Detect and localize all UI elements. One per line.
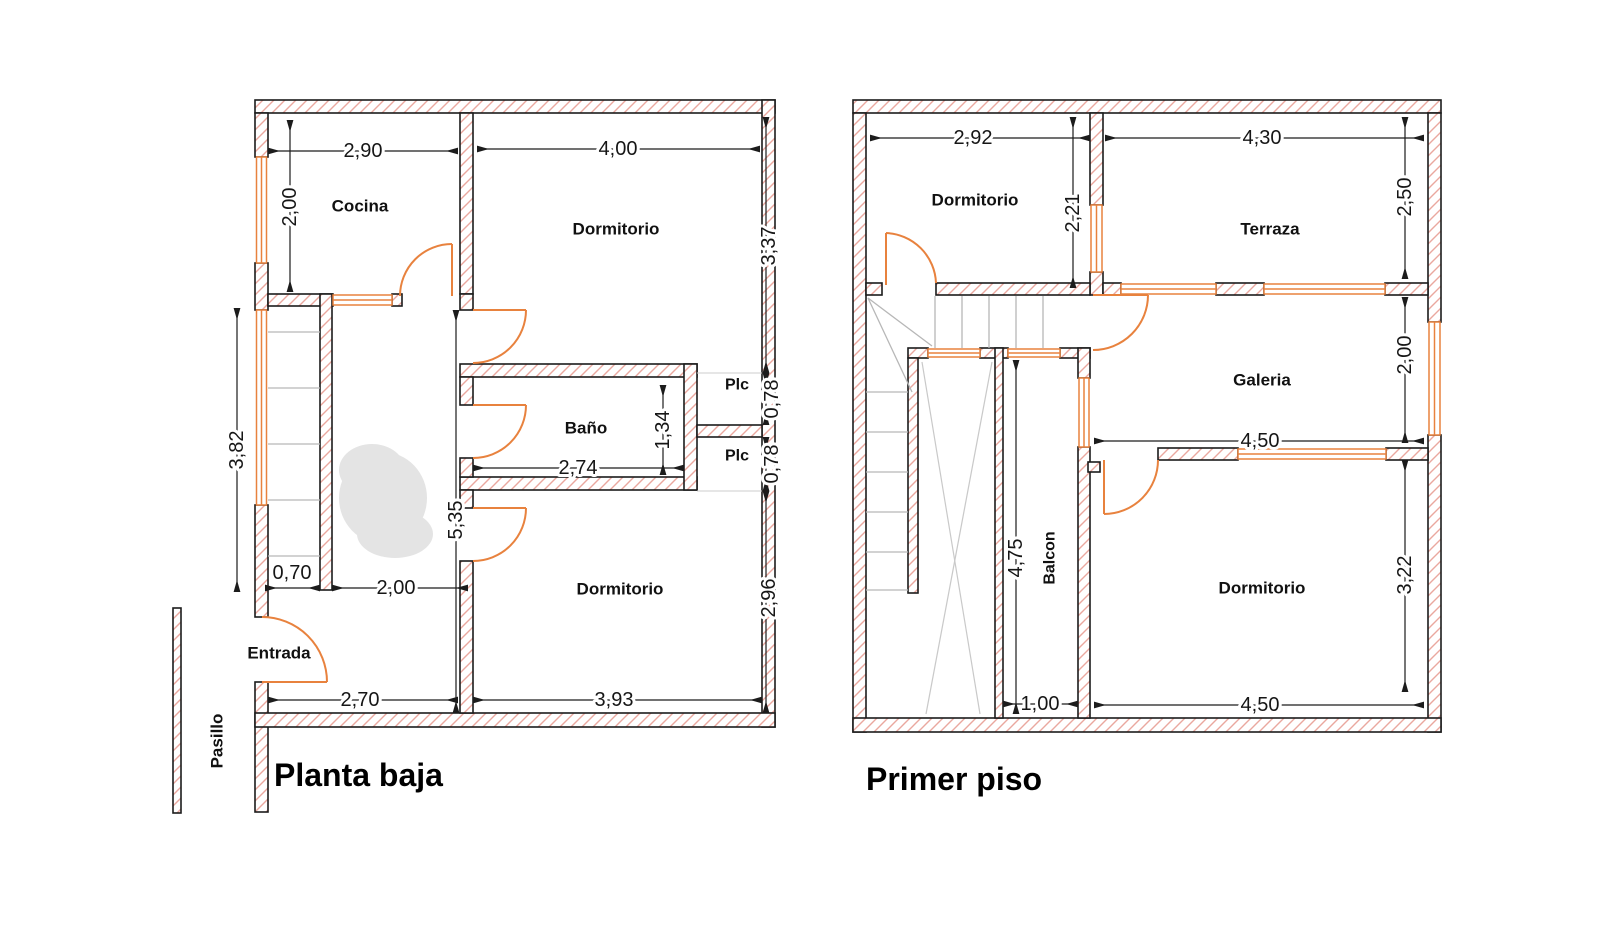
- dim-hall-width: 2,00: [377, 577, 416, 599]
- dim-dorm-bottom-width-pp: 4,50: [1241, 694, 1280, 716]
- room-label-cocina: Cocina: [332, 197, 389, 216]
- room-label-dormitorio-bottom-pp: Dormitorio: [1219, 579, 1306, 598]
- room-label-plc-bottom: Plc: [725, 448, 749, 465]
- dim-terraza-width: 4,30: [1243, 127, 1282, 149]
- dim-balcon-width: 1,00: [1021, 693, 1060, 715]
- dim-plc-bottom-height: 0,78: [761, 445, 783, 484]
- dim-galeria-height: 2,00: [1394, 336, 1416, 375]
- stairwell-void-cross: [922, 362, 992, 714]
- room-label-bano: Baño: [565, 419, 608, 438]
- dim-dorm-bottom-height-pp: 3,22: [1394, 556, 1416, 595]
- dim-cocina-height: 2,00: [279, 188, 301, 227]
- dim-stair-width: 0,70: [273, 562, 312, 584]
- floorplan-canvas: 2,90 4,00 2,00 3,37 0,78 0,78 2,96 3,82 …: [0, 0, 1600, 946]
- room-label-galeria: Galeria: [1233, 371, 1291, 390]
- plan-primer-piso: 2,92 2,21 4,30 2,50 2,00 4,50 4,75 1,00 …: [853, 100, 1441, 797]
- dim-dorm-bottom-height: 2,96: [758, 579, 780, 618]
- room-label-balcon: Balcon: [1042, 531, 1059, 584]
- room-label-dormitorio-bottom: Dormitorio: [577, 580, 664, 599]
- dim-terraza-height: 2,50: [1394, 178, 1416, 217]
- plan-planta-baja: 2,90 4,00 2,00 3,37 0,78 0,78 2,96 3,82 …: [173, 100, 783, 813]
- dim-balcon-height: 4,75: [1005, 539, 1027, 578]
- windows-primer-piso: [928, 205, 1440, 459]
- dim-entrada-width: 2,70: [341, 689, 380, 711]
- smudge-blob: [339, 444, 433, 558]
- stairs-planta-baja: [268, 332, 320, 556]
- dim-stairs-height: 3,82: [226, 431, 248, 470]
- dim-dorm-bottom-width: 3,93: [595, 689, 634, 711]
- dim-dorm-top-width-pp: 2,92: [954, 127, 993, 149]
- floorplan-page: 2,90 4,00 2,00 3,37 0,78 0,78 2,96 3,82 …: [0, 0, 1600, 946]
- room-label-dormitorio-top: Dormitorio: [573, 220, 660, 239]
- room-label-pasillo: Pasillo: [208, 714, 227, 769]
- room-label-plc-top: Plc: [725, 377, 749, 394]
- dim-cocina-width: 2,90: [344, 140, 383, 162]
- dim-bano-height: 1,34: [652, 411, 674, 450]
- dim-dorm-top-width: 4,00: [599, 138, 638, 160]
- dim-dorm-top-height-pp: 2,21: [1062, 194, 1084, 233]
- dim-galeria-width: 4,50: [1241, 430, 1280, 452]
- dim-dorm-top-height: 3,37: [758, 227, 780, 266]
- plan-title-planta-baja: Planta baja: [274, 757, 443, 793]
- doors-primer-piso: [886, 233, 1158, 514]
- room-label-terraza: Terraza: [1240, 220, 1300, 239]
- room-label-dormitorio-top-pp: Dormitorio: [932, 191, 1019, 210]
- dim-hall-height: 5,35: [445, 501, 467, 540]
- room-label-entrada: Entrada: [247, 644, 311, 663]
- plan-title-primer-piso: Primer piso: [866, 761, 1042, 797]
- dim-bano-width: 2,74: [559, 457, 598, 479]
- dim-plc-top-height: 0,78: [761, 380, 783, 419]
